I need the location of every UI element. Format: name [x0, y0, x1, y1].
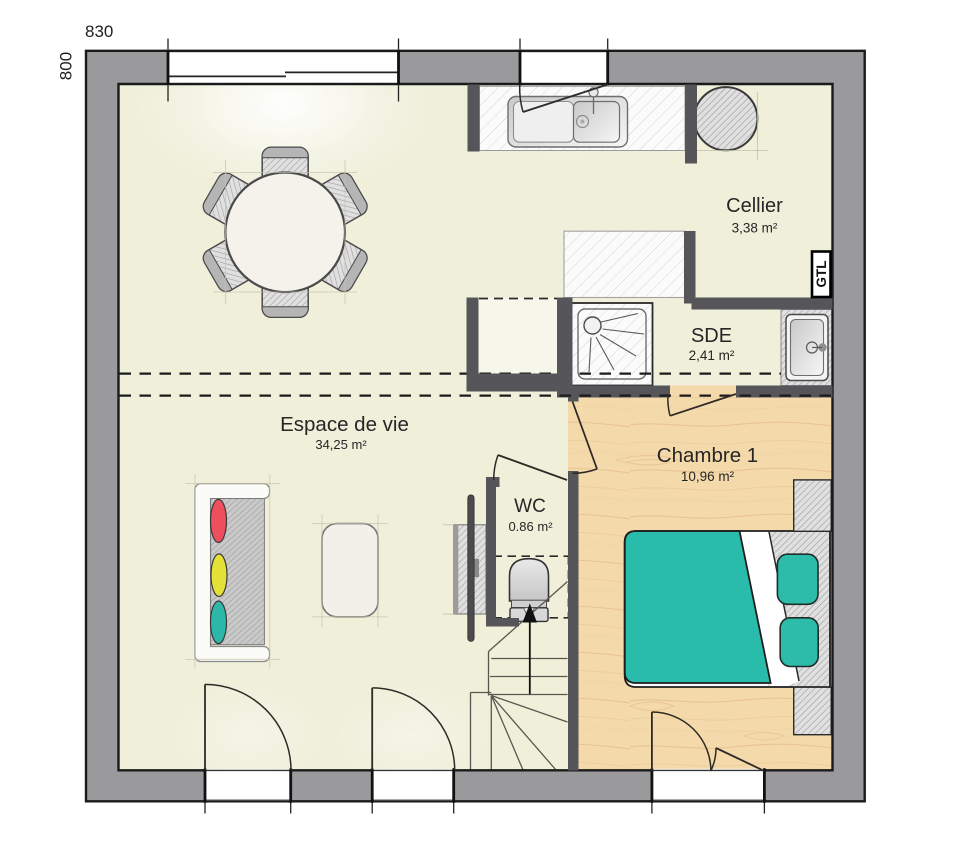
svg-text:800: 800 [57, 52, 76, 80]
svg-text:2,41 m²: 2,41 m² [689, 348, 735, 363]
svg-text:0.86 m²: 0.86 m² [508, 519, 553, 534]
svg-text:Chambre 1: Chambre 1 [657, 444, 758, 467]
svg-text:Espace de vie: Espace de vie [280, 413, 409, 436]
svg-text:WC: WC [514, 496, 546, 517]
svg-text:830: 830 [85, 22, 113, 41]
svg-text:GTL: GTL [814, 261, 829, 288]
svg-text:Cellier: Cellier [726, 195, 783, 217]
svg-text:3,38 m²: 3,38 m² [732, 221, 778, 236]
svg-text:SDE: SDE [691, 325, 732, 347]
svg-text:10,96 m²: 10,96 m² [681, 469, 735, 484]
svg-text:34,25 m²: 34,25 m² [315, 437, 367, 452]
